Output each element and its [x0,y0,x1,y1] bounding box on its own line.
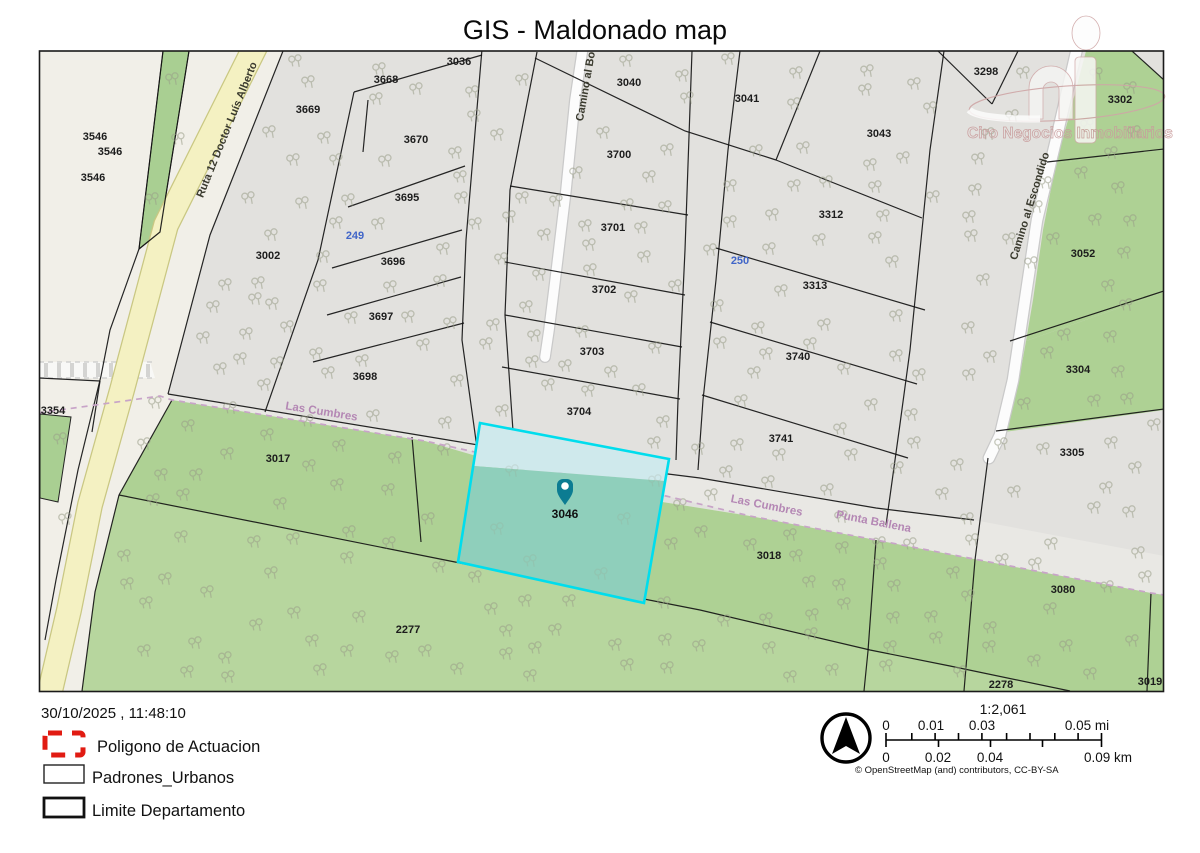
svg-text:3668: 3668 [374,74,398,86]
svg-text:0.04: 0.04 [977,750,1004,765]
svg-text:0.09 km: 0.09 km [1084,750,1132,765]
svg-text:0.01: 0.01 [918,718,944,733]
svg-text:30/10/2025 , 11:48:10: 30/10/2025 , 11:48:10 [41,705,186,722]
svg-text:3696: 3696 [381,256,405,268]
svg-text:3052: 3052 [1071,248,1095,260]
svg-text:3546: 3546 [83,131,107,143]
svg-text:3041: 3041 [735,93,759,105]
svg-text:Poligono de Actuacion: Poligono de Actuacion [97,738,260,756]
svg-text:3740: 3740 [786,351,810,363]
svg-text:3697: 3697 [369,311,393,323]
svg-text:249: 249 [346,230,364,242]
svg-text:3080: 3080 [1051,584,1075,596]
svg-text:3313: 3313 [803,280,827,292]
svg-text:2278: 2278 [989,679,1013,691]
svg-text:3302: 3302 [1108,94,1132,106]
svg-text:Ciro Negocios Inmobiliarios: Ciro Negocios Inmobiliarios [967,125,1173,142]
svg-text:3312: 3312 [819,209,843,221]
svg-text:3036: 3036 [447,56,471,68]
svg-text:3741: 3741 [769,433,793,445]
svg-text:3298: 3298 [974,66,998,78]
svg-text:3700: 3700 [607,149,631,161]
svg-text:3698: 3698 [353,371,377,383]
svg-text:3304: 3304 [1066,364,1091,376]
svg-text:3305: 3305 [1060,447,1084,459]
svg-text:3701: 3701 [601,222,625,234]
svg-text:3354: 3354 [41,405,66,417]
svg-text:250: 250 [731,255,749,267]
svg-text:3046: 3046 [552,507,579,521]
svg-text:3043: 3043 [867,128,891,140]
svg-text:Padrones_Urbanos: Padrones_Urbanos [92,769,234,787]
svg-text:3040: 3040 [617,77,641,89]
svg-text:0.02: 0.02 [925,750,951,765]
svg-text:3002: 3002 [256,250,280,262]
svg-text:3670: 3670 [404,134,428,146]
svg-text:0.03: 0.03 [969,718,995,733]
svg-text:0: 0 [882,718,890,733]
svg-text:3017: 3017 [266,453,290,465]
svg-text:3018: 3018 [757,550,781,562]
svg-text:2277: 2277 [396,624,420,636]
svg-text:© OpenStreetMap (and) contribu: © OpenStreetMap (and) contributors, CC-B… [855,765,1059,776]
svg-text:0: 0 [882,750,890,765]
svg-text:3703: 3703 [580,346,604,358]
svg-text:3704: 3704 [567,406,592,418]
svg-text:3702: 3702 [592,284,616,296]
svg-text:3546: 3546 [98,146,122,158]
svg-text:Limite Departamento: Limite Departamento [92,802,245,820]
svg-text:3695: 3695 [395,192,419,204]
svg-text:0.05 mi: 0.05 mi [1065,718,1109,733]
svg-text:3019: 3019 [1138,676,1162,688]
svg-text:GIS - Maldonado map: GIS - Maldonado map [463,15,727,45]
svg-text:3669: 3669 [296,104,320,116]
svg-text:3546: 3546 [81,172,105,184]
svg-text:1:2,061: 1:2,061 [980,701,1027,717]
